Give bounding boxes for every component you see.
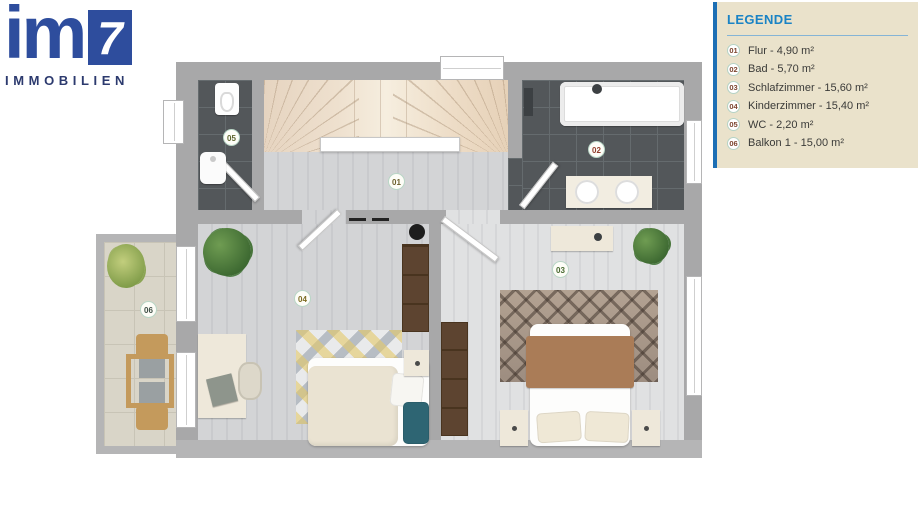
bathroom-radiator [524,88,533,116]
wall-hall-bath [508,80,522,158]
legend-title: LEGENDE [727,12,918,27]
legend-num-badge: 05 [727,118,740,131]
bathtub [560,82,684,126]
wall-hall-bottom-c [500,210,684,224]
wc-window [163,100,184,144]
wall-hall-bottom-a [198,210,302,224]
stair-window-top [440,56,504,80]
balcony-wall-left [96,234,104,454]
bed-pillow-right [584,411,630,443]
hallway-floor [264,152,508,210]
nightstand-left [500,410,528,446]
single-bed-duvet [308,366,398,446]
legend-item: 01Flur - 4,90 m² [727,44,908,57]
ceiling-lamp [409,224,425,240]
stair-handrail [320,137,460,152]
logo-text: im [4,0,84,66]
room-marker-schlafzimmer: 03 [552,261,569,278]
toilet [215,83,239,115]
legend-item-label: Bad - 5,70 m² [748,63,815,75]
legend-list: 01Flur - 4,90 m² 02Bad - 5,70 m² 03Schla… [717,44,918,150]
kidsroom-plant [203,228,251,276]
wall-room-divider [429,224,441,440]
nightstand-right [632,410,660,446]
balcony-wall-bottom [104,446,176,454]
legend-item: 06Balkon 1 - 15,00 m² [727,137,908,150]
wall-top [176,62,700,80]
double-sink-vanity [566,176,652,208]
legend-item: 04Kinderzimmer - 15,40 m² [727,100,908,113]
bathroom-window [686,120,702,184]
legend-item-label: Kinderzimmer - 15,40 m² [748,100,869,112]
legend-panel: LEGENDE 01Flur - 4,90 m² 02Bad - 5,70 m²… [713,2,918,168]
bathtub-faucet [592,84,602,94]
room-marker-balkon: 06 [140,301,157,318]
room-marker-kinderzimmer: 04 [294,290,311,307]
threshold-mark-1 [349,218,366,221]
floorplan-page: im 7 IMMOBILIEN [0,0,920,518]
legend-item-label: Schlafzimmer - 15,60 m² [748,82,868,94]
legend-num-badge: 06 [727,137,740,150]
balcony-table [126,354,174,408]
desk-chair [238,362,262,400]
legend-num-badge: 03 [727,81,740,94]
bed-blanket [526,336,634,388]
logo-number: 7 [97,15,123,61]
bedroom-window [686,276,702,396]
legend-item-label: WC - 2,20 m² [748,119,813,131]
bed-pillow-left [536,411,582,444]
kidsroom-window-lower [176,352,196,428]
room-marker-wc: 05 [223,129,240,146]
console-decor [594,233,602,241]
legend-num-badge: 04 [727,100,740,113]
logo-subtitle: IMMOBILIEN [5,73,129,88]
kidsroom-nightstand [404,350,429,376]
balcony-plant [107,244,145,288]
bedroom-dresser [441,322,468,436]
threshold-mark-2 [372,218,389,221]
room-marker-bad: 02 [588,141,605,158]
legend-num-badge: 02 [727,63,740,76]
console-table [551,226,613,251]
legend-item-label: Flur - 4,90 m² [748,45,814,57]
legend-item: 05WC - 2,20 m² [727,118,908,131]
balcony-chair-bottom [136,406,168,430]
legend-item: 02Bad - 5,70 m² [727,63,908,76]
room-marker-flur: 01 [388,173,405,190]
single-bed-teal-pillow [403,402,429,444]
legend-item-label: Balkon 1 - 15,00 m² [748,137,844,149]
balcony-wall-top [104,234,176,242]
legend-num-badge: 01 [727,44,740,57]
kidsroom-window-upper [176,246,196,322]
wc-sink [200,152,226,184]
logo-number-box: 7 [88,10,132,65]
kidsroom-wardrobe [402,244,429,332]
bedroom-plant [633,228,669,264]
wall-hall-bottom-b [346,210,446,224]
legend-item: 03Schlafzimmer - 15,60 m² [727,81,908,94]
legend-divider [727,35,908,36]
